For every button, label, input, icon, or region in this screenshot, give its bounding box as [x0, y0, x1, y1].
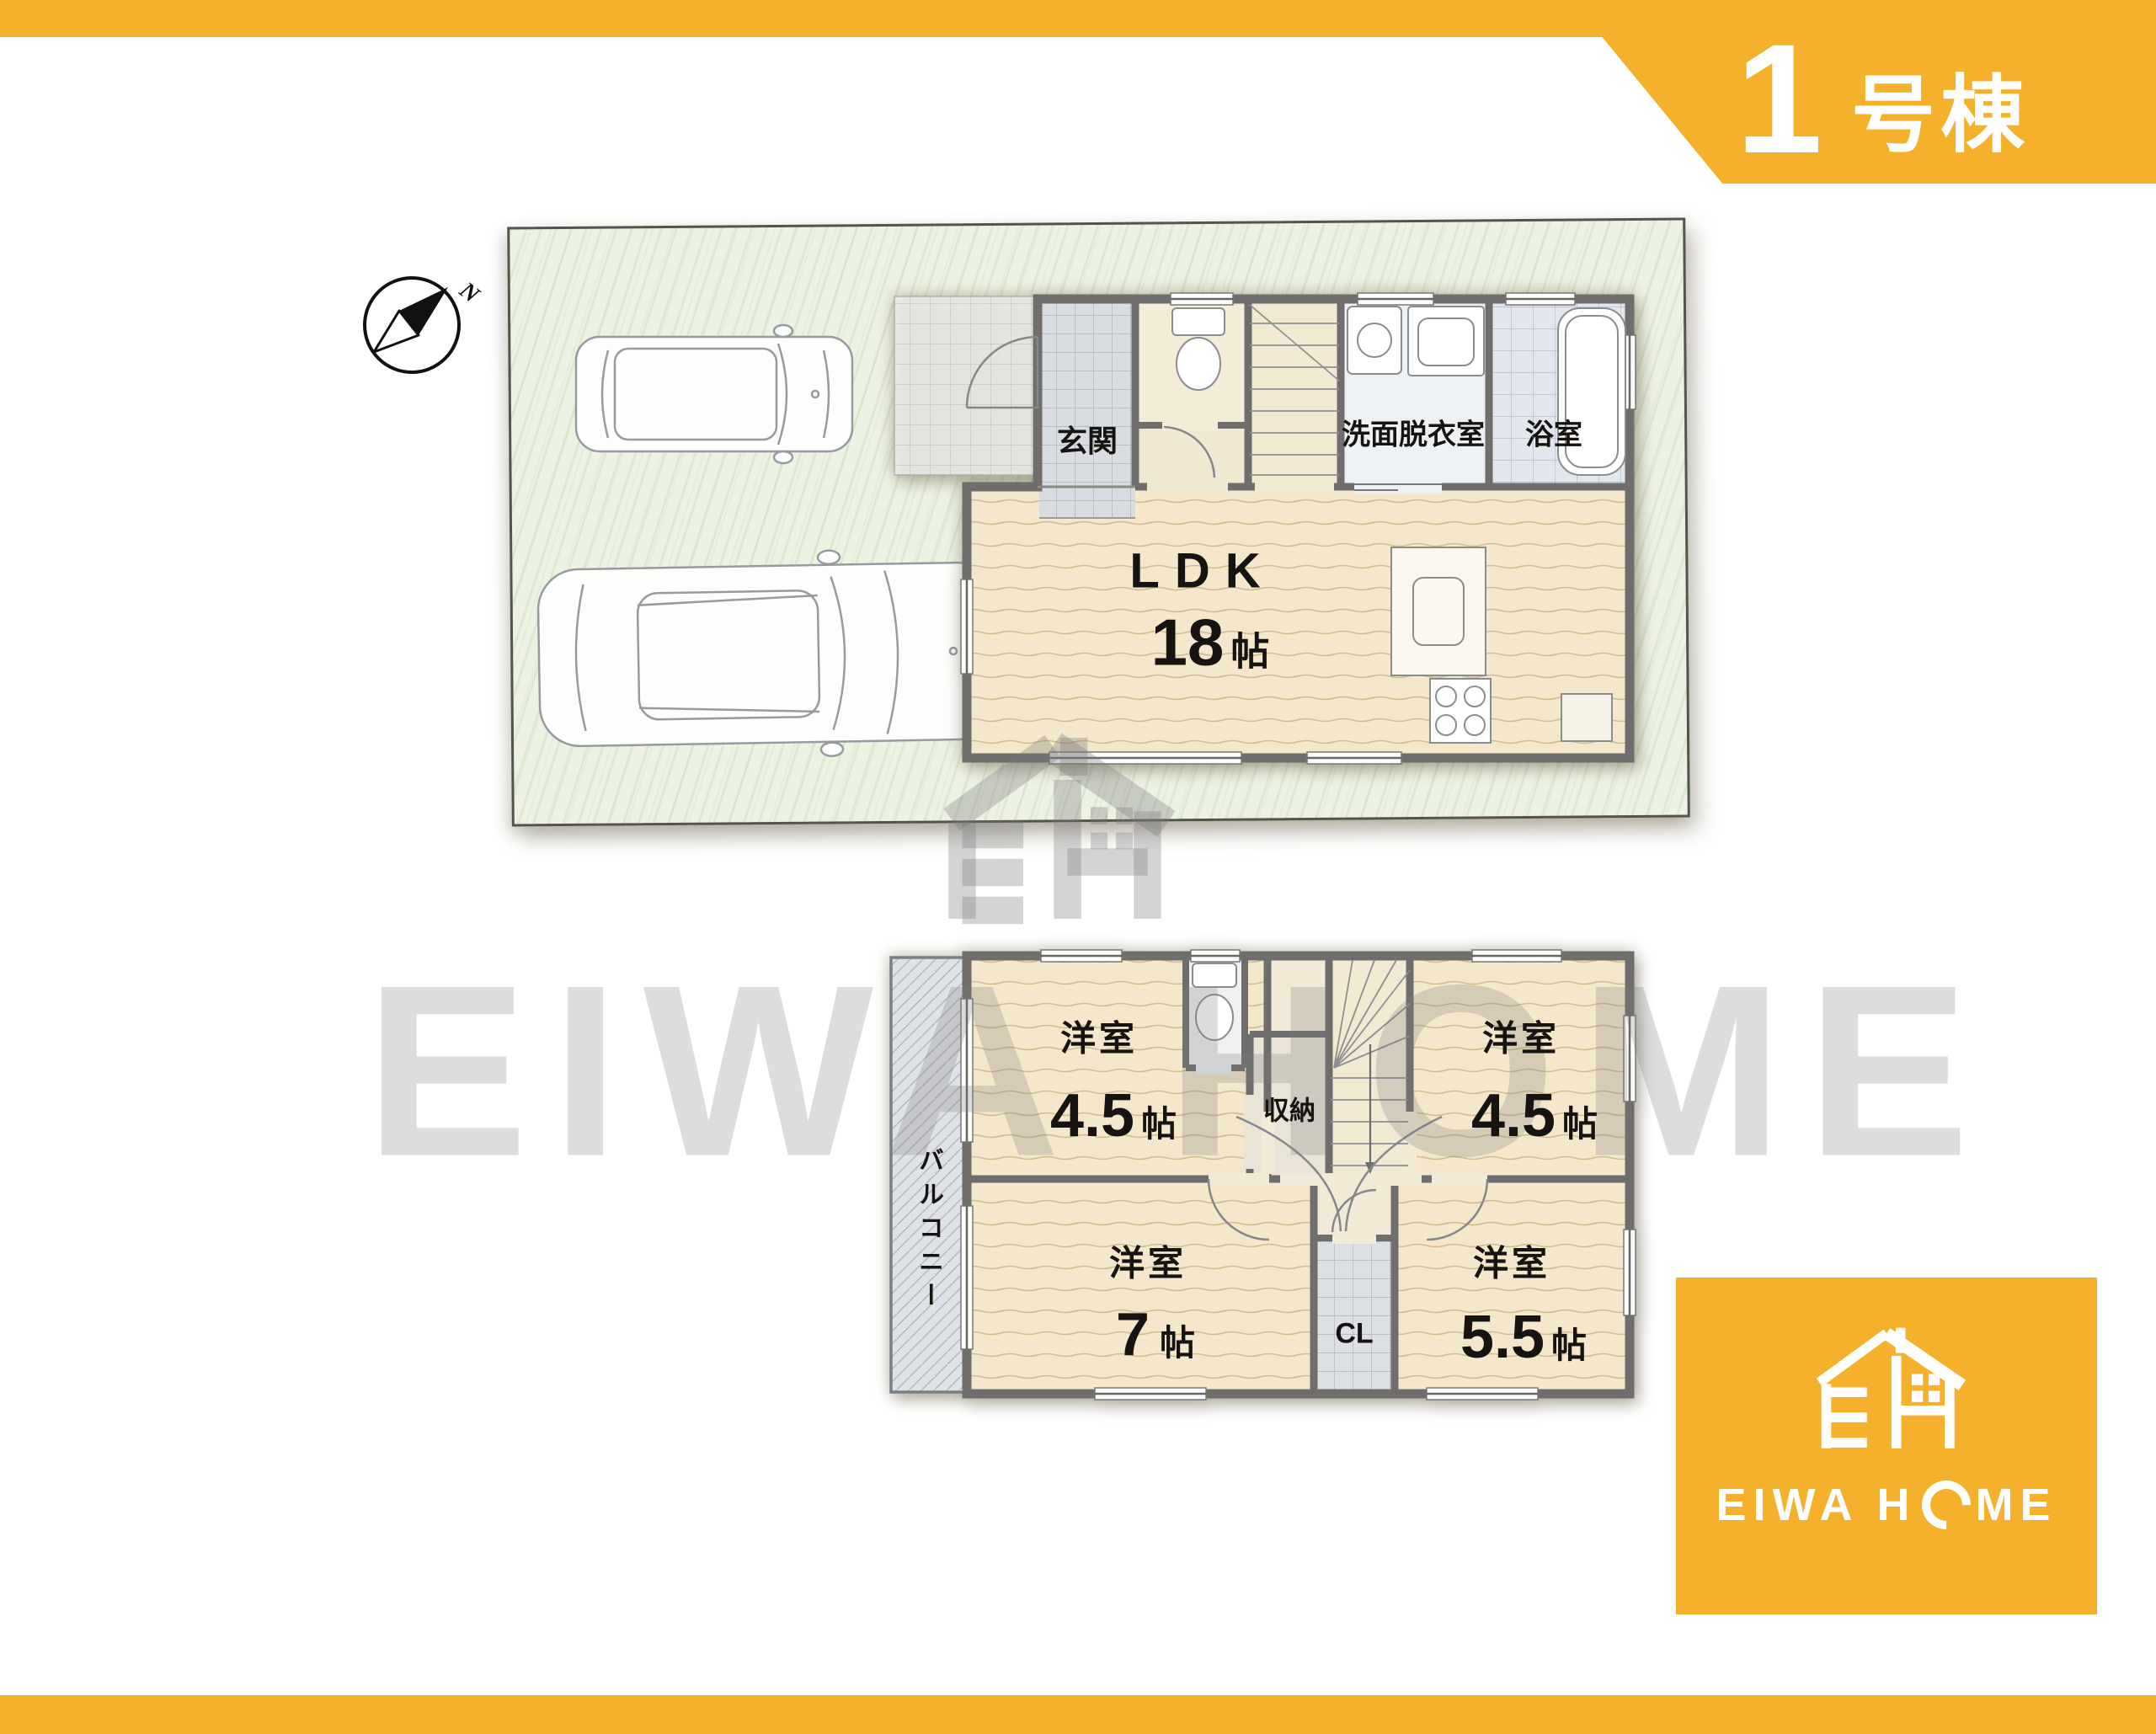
- compass-icon: N: [355, 266, 482, 392]
- unit-suffix: 号棟: [1851, 77, 2030, 153]
- label-room-br-size: 5.5帖: [1460, 1303, 1587, 1372]
- label-ldk: LDK: [1129, 543, 1275, 600]
- ldk-floor: [967, 487, 1630, 758]
- label-room-bl: 洋室: [1109, 1235, 1187, 1287]
- room-tl-size-unit: 帖: [1141, 1104, 1177, 1144]
- label-room-bl-size: 7帖: [1116, 1300, 1195, 1369]
- genkan-floor: [1039, 301, 1135, 518]
- company-house-icon: [1802, 1310, 1971, 1464]
- ldk-size-number: 18: [1151, 606, 1225, 680]
- room-tl-size-number: 4.5: [1050, 1082, 1134, 1150]
- room-bl-size-number: 7: [1116, 1301, 1150, 1369]
- brand-o-ring-icon: [1911, 1470, 1980, 1539]
- label-cl: CL: [1335, 1318, 1373, 1351]
- room-bl-size-unit: 帖: [1160, 1323, 1195, 1363]
- hall1-floor: [1135, 425, 1248, 487]
- kitchen-island: [1391, 547, 1486, 675]
- ldk-size-unit: 帖: [1230, 630, 1269, 674]
- label-room-tl: 洋室: [1060, 1011, 1138, 1062]
- room-br-size-number: 5.5: [1460, 1304, 1545, 1371]
- label-room-tr-size: 4.5帖: [1471, 1081, 1598, 1150]
- toilet1-fixture: [1172, 308, 1225, 335]
- room-tr-size-unit: 帖: [1562, 1104, 1598, 1144]
- floor1-plan: [876, 278, 1651, 775]
- unit-number: 1: [1736, 37, 1822, 162]
- stairs1-floor: [1248, 299, 1341, 487]
- brand-name-post: ME: [1976, 1479, 2057, 1531]
- car-top: [571, 315, 857, 473]
- brand-name-pre: EIWA H: [1716, 1479, 1916, 1531]
- label-balcony: バルコニー: [910, 1147, 947, 1315]
- footer-bar: [0, 1695, 2156, 1734]
- kitchen-cabinet: [1561, 694, 1612, 741]
- company-logo-block: EIWA HME: [1676, 1278, 2097, 1614]
- floorplan-flyer: 1 号棟 N: [0, 0, 2156, 1734]
- label-ldk-size: 18帖: [1151, 605, 1270, 681]
- entrance-porch: [894, 296, 1038, 475]
- room-tr-size-number: 4.5: [1471, 1082, 1556, 1150]
- compass-north-label: N: [454, 276, 482, 309]
- washer-fixture: [1347, 307, 1401, 374]
- label-room-br: 洋室: [1473, 1235, 1550, 1287]
- unit-banner: 1 号棟: [1583, 0, 2156, 184]
- cl-floor: [1314, 1238, 1395, 1394]
- toilet2-fixture: [1193, 963, 1236, 987]
- label-room-tl-size: 4.5帖: [1050, 1081, 1177, 1150]
- label-washroom: 洗面脱衣室: [1342, 412, 1485, 453]
- room-br-size-unit: 帖: [1551, 1326, 1587, 1365]
- brand-name: EIWA HME: [1716, 1479, 2057, 1531]
- label-bathroom: 浴室: [1525, 412, 1582, 453]
- label-room-tr: 洋室: [1482, 1011, 1560, 1062]
- label-genkan: 玄関: [1057, 417, 1118, 461]
- label-closet: 収納: [1263, 1090, 1315, 1128]
